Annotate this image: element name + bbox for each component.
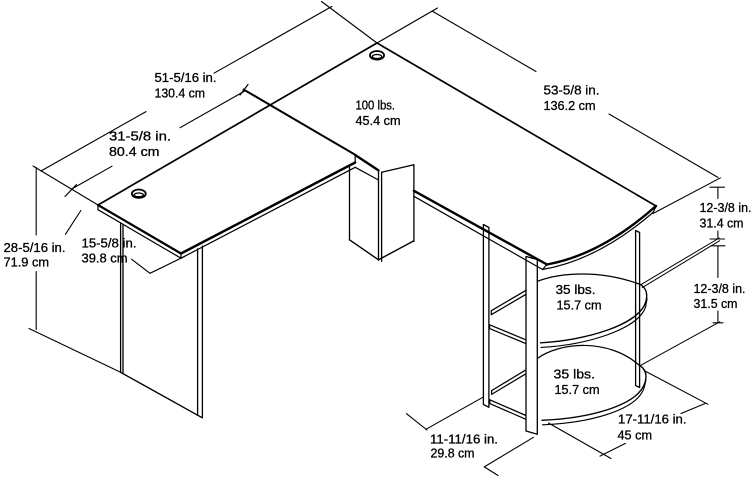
svg-text:45 cm: 45 cm <box>618 428 653 443</box>
svg-text:31.5 cm: 31.5 cm <box>694 296 738 311</box>
svg-text:12-3/8 in.: 12-3/8 in. <box>700 200 752 215</box>
svg-text:31.4 cm: 31.4 cm <box>700 216 744 231</box>
svg-text:35 lbs.: 35 lbs. <box>554 367 596 382</box>
svg-text:31-5/8 in.: 31-5/8 in. <box>109 129 171 144</box>
svg-text:35 lbs.: 35 lbs. <box>556 282 596 297</box>
svg-text:15-5/8 in.: 15-5/8 in. <box>82 236 137 251</box>
svg-text:45.4 cm: 45.4 cm <box>356 113 401 128</box>
svg-text:51-5/16 in.: 51-5/16 in. <box>155 70 217 85</box>
svg-text:53-5/8 in.: 53-5/8 in. <box>544 82 600 97</box>
svg-text:80.4 cm: 80.4 cm <box>109 144 160 159</box>
svg-text:71.9 cm: 71.9 cm <box>4 255 50 270</box>
svg-text:12-3/8 in.: 12-3/8 in. <box>694 281 746 296</box>
svg-text:39.8 cm: 39.8 cm <box>82 251 128 266</box>
svg-text:100 lbs.: 100 lbs. <box>356 97 396 112</box>
svg-text:15.7 cm: 15.7 cm <box>557 298 602 313</box>
svg-text:130.4 cm: 130.4 cm <box>155 86 206 101</box>
svg-text:29.8 cm: 29.8 cm <box>431 446 475 461</box>
svg-text:15.7 cm: 15.7 cm <box>555 382 600 397</box>
svg-text:17-11/16 in.: 17-11/16 in. <box>618 412 687 427</box>
svg-text:136.2 cm: 136.2 cm <box>544 98 596 113</box>
svg-text:11-11/16 in.: 11-11/16 in. <box>430 432 498 447</box>
svg-text:28-5/16 in.: 28-5/16 in. <box>4 240 66 255</box>
